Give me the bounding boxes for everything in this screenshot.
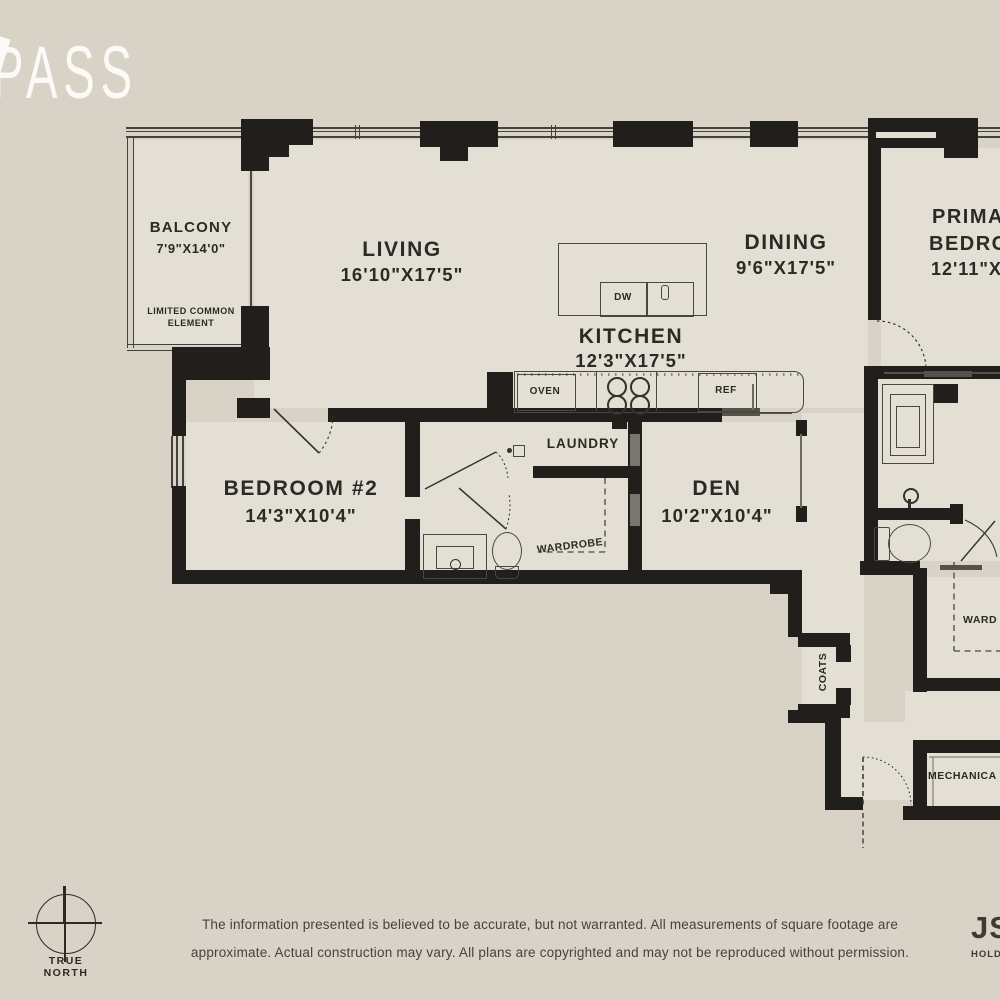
floor-plan-page: PASS bbox=[0, 0, 1000, 1000]
room-label-den: DEN bbox=[692, 477, 741, 501]
bedroom2-window bbox=[171, 436, 184, 488]
room-label-primary-line2: BEDRO bbox=[929, 233, 1000, 256]
floor-area bbox=[841, 722, 913, 800]
stove-edge bbox=[656, 372, 657, 411]
toilet-bowl bbox=[888, 524, 931, 563]
door-opening bbox=[630, 434, 640, 466]
room-dims-bedroom2: 14'3"X10'4" bbox=[245, 505, 356, 527]
wall bbox=[613, 121, 693, 147]
balcony-slider-door bbox=[250, 166, 252, 308]
island-sink bbox=[646, 282, 694, 317]
wall bbox=[770, 582, 790, 594]
disclaimer-line2: approximate. Actual construction may var… bbox=[100, 945, 1000, 960]
floor-area bbox=[881, 148, 1000, 366]
wall bbox=[903, 806, 1000, 820]
wall bbox=[237, 398, 270, 418]
developer-logo-subtext: HOLD bbox=[971, 949, 1000, 960]
wall bbox=[860, 561, 920, 575]
drain-icon bbox=[450, 559, 461, 570]
wall bbox=[934, 384, 958, 403]
sink-stem bbox=[908, 499, 911, 508]
wall bbox=[241, 143, 289, 157]
wall bbox=[944, 148, 978, 158]
sink-icon bbox=[903, 488, 919, 504]
door-opening bbox=[630, 494, 640, 526]
towel-bar bbox=[940, 565, 982, 570]
room-dims-balcony: 7'9"X14'0" bbox=[156, 241, 225, 256]
cased-opening bbox=[800, 434, 802, 508]
room-label-primary-line1: PRIMA bbox=[932, 206, 1000, 229]
wall bbox=[788, 582, 802, 637]
room-dims-den: 10'2"X10'4" bbox=[661, 505, 772, 527]
wall bbox=[172, 347, 270, 380]
room-label-wardrobe-primary: WARD bbox=[963, 614, 997, 626]
label-fridge: REF bbox=[715, 385, 737, 396]
true-north-label-line2: NORTH bbox=[44, 967, 89, 979]
floor-area bbox=[905, 691, 1000, 740]
compass-logo: PASS bbox=[0, 30, 138, 115]
wall bbox=[405, 410, 420, 497]
door-jamb bbox=[836, 688, 851, 705]
room-label-kitchen: KITCHEN bbox=[579, 325, 684, 349]
wall bbox=[825, 710, 841, 810]
balcony-note-line2: ELEMENT bbox=[168, 318, 215, 328]
balcony-note-line1: LIMITED COMMON bbox=[147, 306, 235, 316]
room-label-laundry: LAUNDRY bbox=[547, 436, 620, 451]
floor-area bbox=[927, 577, 1000, 678]
room-dims-dining: 9'6"X17'5" bbox=[736, 257, 836, 279]
burner-icon bbox=[607, 395, 627, 415]
faucet-icon bbox=[661, 285, 669, 300]
closet-slot bbox=[876, 132, 936, 138]
wall bbox=[405, 519, 420, 574]
true-north-label-line1: TRUE bbox=[49, 955, 84, 967]
room-label-living: LIVING bbox=[362, 238, 442, 262]
room-label-dining: DINING bbox=[744, 231, 827, 255]
fixture-knob bbox=[507, 448, 512, 453]
wall bbox=[913, 568, 927, 692]
wall bbox=[440, 147, 468, 161]
wall bbox=[841, 797, 863, 810]
room-label-coats: COATS bbox=[817, 653, 829, 691]
wall bbox=[913, 740, 1000, 753]
door-jamb bbox=[836, 645, 851, 662]
room-dims-kitchen: 12'3"X17'5" bbox=[575, 350, 686, 372]
burner-icon bbox=[630, 377, 650, 397]
window-mullion bbox=[355, 125, 360, 139]
wall bbox=[864, 508, 952, 520]
wall bbox=[921, 678, 1000, 691]
window-mullion bbox=[551, 125, 556, 139]
room-label-mechanical: MECHANICA bbox=[928, 770, 997, 782]
label-dishwasher: DW bbox=[614, 292, 632, 303]
wall bbox=[487, 372, 513, 412]
burner-icon bbox=[630, 395, 650, 415]
wall bbox=[172, 570, 802, 584]
room-dims-living: 16'10"X17'5" bbox=[341, 264, 464, 286]
opening-jamb bbox=[796, 506, 807, 522]
fixture-icon bbox=[513, 445, 525, 457]
room-dims-primary: 12'11"X1 bbox=[931, 259, 1000, 280]
stove-edge bbox=[596, 372, 597, 411]
bathtub-basin bbox=[896, 406, 920, 448]
toilet-seat bbox=[495, 566, 519, 579]
disclaimer-line1: The information presented is believed to… bbox=[100, 917, 1000, 932]
balcony-window-wall bbox=[127, 138, 134, 348]
wall bbox=[868, 146, 881, 320]
wall bbox=[533, 466, 633, 478]
door-jamb bbox=[950, 504, 963, 524]
room-label-balcony: BALCONY bbox=[150, 219, 233, 236]
developer-logo: JS bbox=[971, 910, 1000, 946]
compass-rose-north-needle bbox=[63, 886, 66, 924]
wall bbox=[172, 378, 186, 436]
wall bbox=[750, 121, 798, 147]
toilet-bowl bbox=[492, 532, 522, 570]
label-oven: OVEN bbox=[530, 386, 561, 397]
door-jamb bbox=[612, 420, 627, 429]
burner-icon bbox=[607, 377, 627, 397]
wall bbox=[420, 121, 498, 147]
room-label-bedroom2: BEDROOM #2 bbox=[224, 477, 379, 501]
towel-bar bbox=[924, 371, 972, 377]
